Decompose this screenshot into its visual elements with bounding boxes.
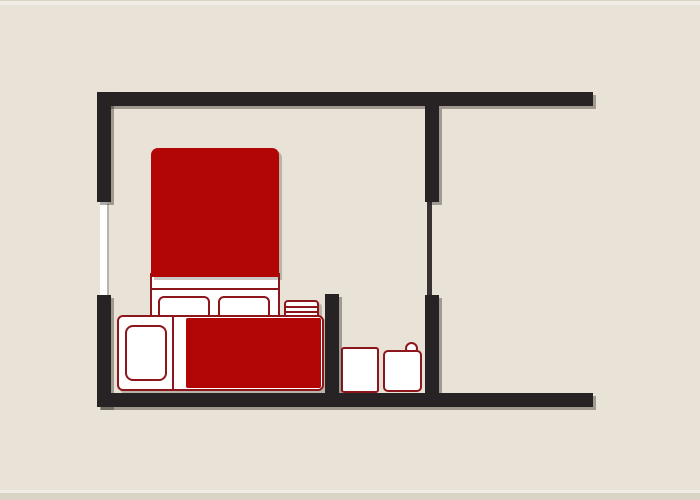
floorplan-canvas (0, 0, 700, 500)
kitchen-sink (125, 325, 167, 381)
wall-bathroom-divider (325, 294, 339, 393)
canvas-bottom-edge-shade (0, 493, 700, 500)
toilet (383, 350, 422, 392)
wall-bottom (98, 393, 593, 407)
window-left (100, 202, 107, 295)
door-line-right (427, 202, 432, 295)
bed-sheet-fold-line (150, 288, 280, 290)
bed-blanket (151, 148, 279, 277)
radiator-slat-line-1 (286, 306, 317, 308)
wall-top (98, 92, 593, 106)
wall-left-upper (97, 92, 111, 202)
radiator-slat-line-2 (286, 311, 317, 313)
kitchen-countertop (186, 318, 321, 388)
washing-machine (341, 347, 379, 393)
wall-left-lower (97, 295, 111, 407)
kitchen-counter-divider-line (172, 315, 174, 391)
wall-right-upper (425, 106, 439, 202)
wall-right-lower (425, 295, 439, 393)
canvas-top-edge-highlight (0, 1, 700, 5)
